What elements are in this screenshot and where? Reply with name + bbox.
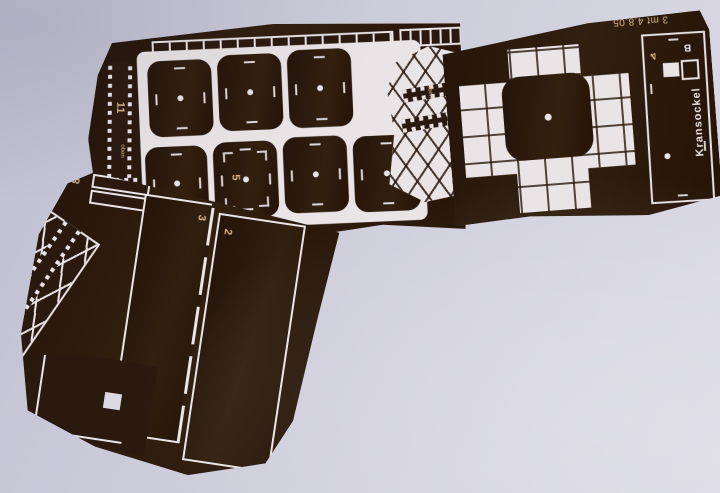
truss-oben-mark: oben — [426, 84, 434, 98]
serrated-strip-11: 11 oben — [107, 62, 132, 178]
part-8-label: 8 — [71, 177, 83, 185]
frame-b-label: B — [683, 42, 691, 52]
corner-mark-icon — [223, 152, 233, 162]
round-square-panel — [286, 48, 353, 129]
edge-date-note: 3 mt 4.8.05 — [580, 11, 700, 29]
strip-11-label: 11 — [114, 102, 125, 114]
corner-mark-icon — [259, 196, 269, 206]
square-hole — [103, 392, 122, 410]
base-blank-part — [23, 347, 157, 456]
round-square-panel — [147, 59, 214, 138]
etched-sheet-right: B 4 Kransockel 3 mt 4.8.05 — [441, 10, 720, 230]
round-square-panel — [217, 53, 284, 132]
jib-lattice: oben — [0, 207, 100, 361]
panel-3-label: 3 — [195, 214, 207, 222]
small-cutout-filled — [663, 62, 680, 77]
lattice-serrated-strip: oben — [0, 220, 81, 347]
lattice-oben-mark: oben — [15, 298, 28, 312]
small-cutout-outline — [681, 59, 700, 80]
round-square-panel — [282, 135, 349, 214]
panel-5-label: 5 — [229, 174, 240, 181]
strip-11-oben-mark: oben — [119, 144, 125, 157]
frame-4-label: 4 — [648, 49, 658, 60]
panel-2-label: 2 — [221, 228, 233, 236]
base-plate-panel — [500, 71, 594, 162]
corner-mark-icon — [257, 151, 267, 161]
kransockel-frame: B 4 Kransockel — [641, 31, 715, 205]
rivet-hole — [664, 153, 670, 159]
kransockel-title: Kransockel — [690, 87, 706, 157]
photo-backdrop: 11 oben 12 oben 5 oben — [0, 0, 720, 493]
